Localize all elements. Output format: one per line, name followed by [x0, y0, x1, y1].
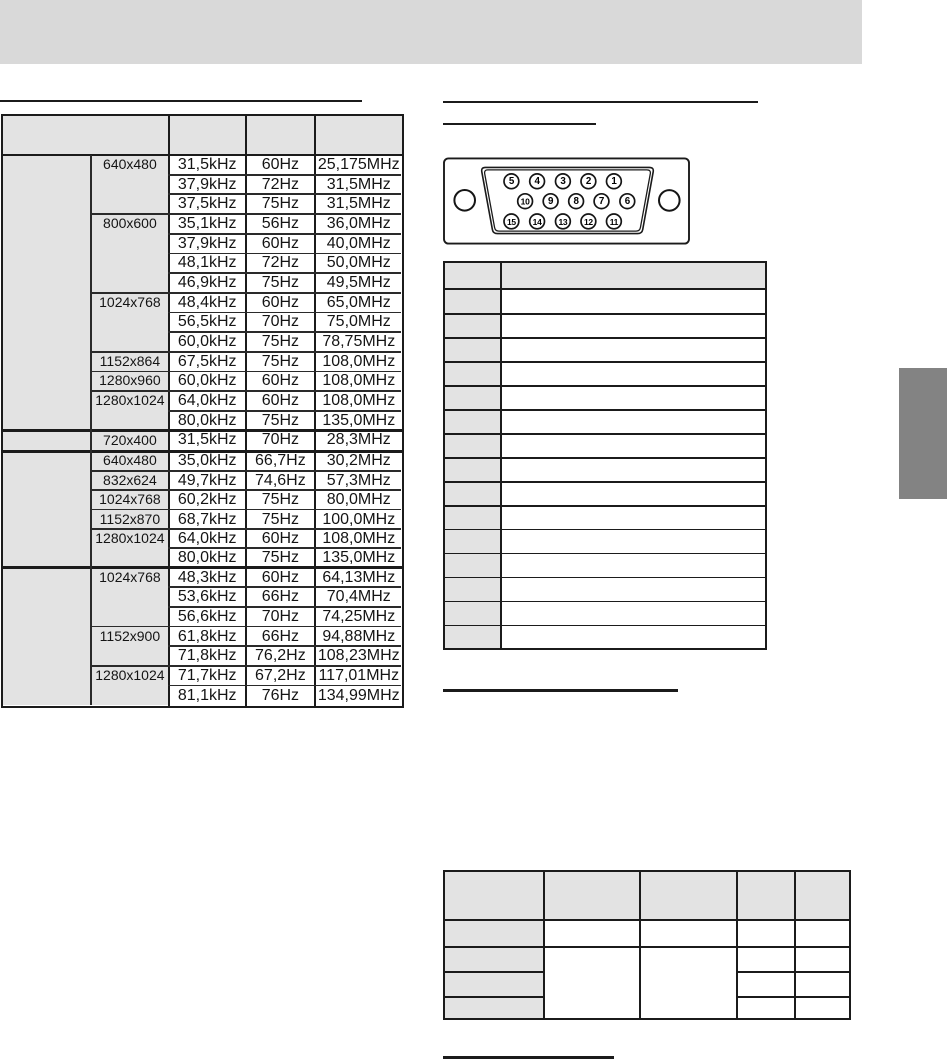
svg-text:10: 10: [521, 197, 530, 207]
svg-text:12: 12: [584, 217, 593, 227]
svg-text:2: 2: [586, 176, 592, 187]
svg-text:9: 9: [548, 196, 554, 207]
svg-text:7: 7: [599, 196, 605, 207]
svg-text:11: 11: [610, 217, 619, 227]
svg-text:8: 8: [574, 196, 580, 207]
svg-text:5: 5: [509, 176, 515, 187]
svg-text:1: 1: [611, 176, 617, 187]
svg-text:14: 14: [533, 217, 542, 227]
svg-text:13: 13: [558, 217, 567, 227]
svg-text:4: 4: [535, 176, 541, 187]
svg-text:6: 6: [625, 196, 631, 207]
svg-text:15: 15: [507, 217, 516, 227]
svg-text:3: 3: [560, 176, 566, 187]
